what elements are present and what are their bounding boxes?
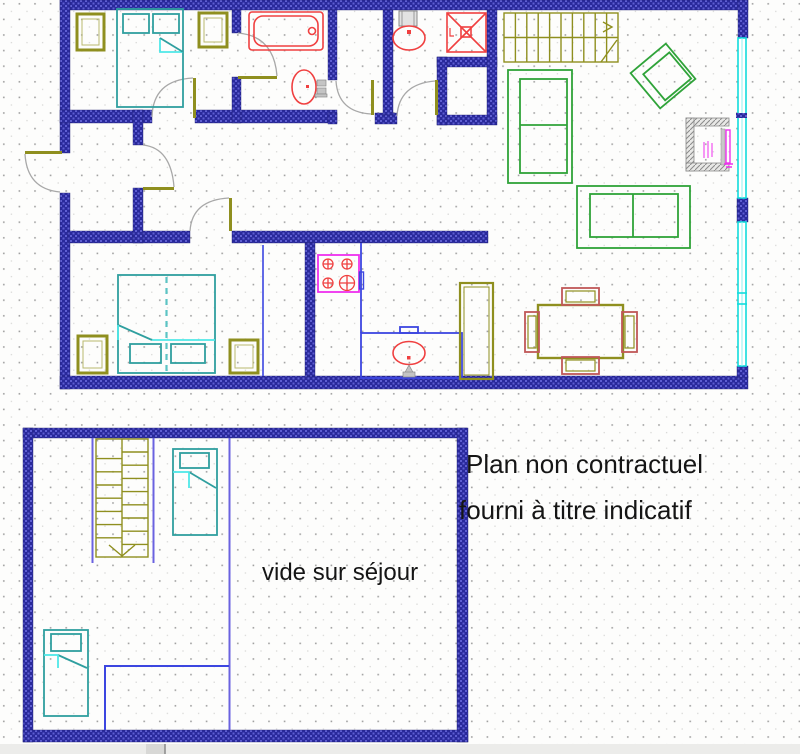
floorplan-drawing: vide sur séjour Plan non contractuel fou…	[0, 0, 800, 754]
void-label: vide sur séjour	[262, 559, 418, 586]
window-mullion	[736, 113, 747, 118]
status-bar	[0, 744, 800, 754]
floorplan-viewer: vide sur séjour Plan non contractuel fou…	[0, 0, 800, 754]
disclaimer-line-2: fourni à titre indicatif	[459, 495, 692, 525]
faucet-icon	[315, 80, 327, 97]
scrollbar-thumb[interactable]	[146, 744, 165, 754]
disclaimer-line-1: Plan non contractuel	[466, 449, 703, 479]
